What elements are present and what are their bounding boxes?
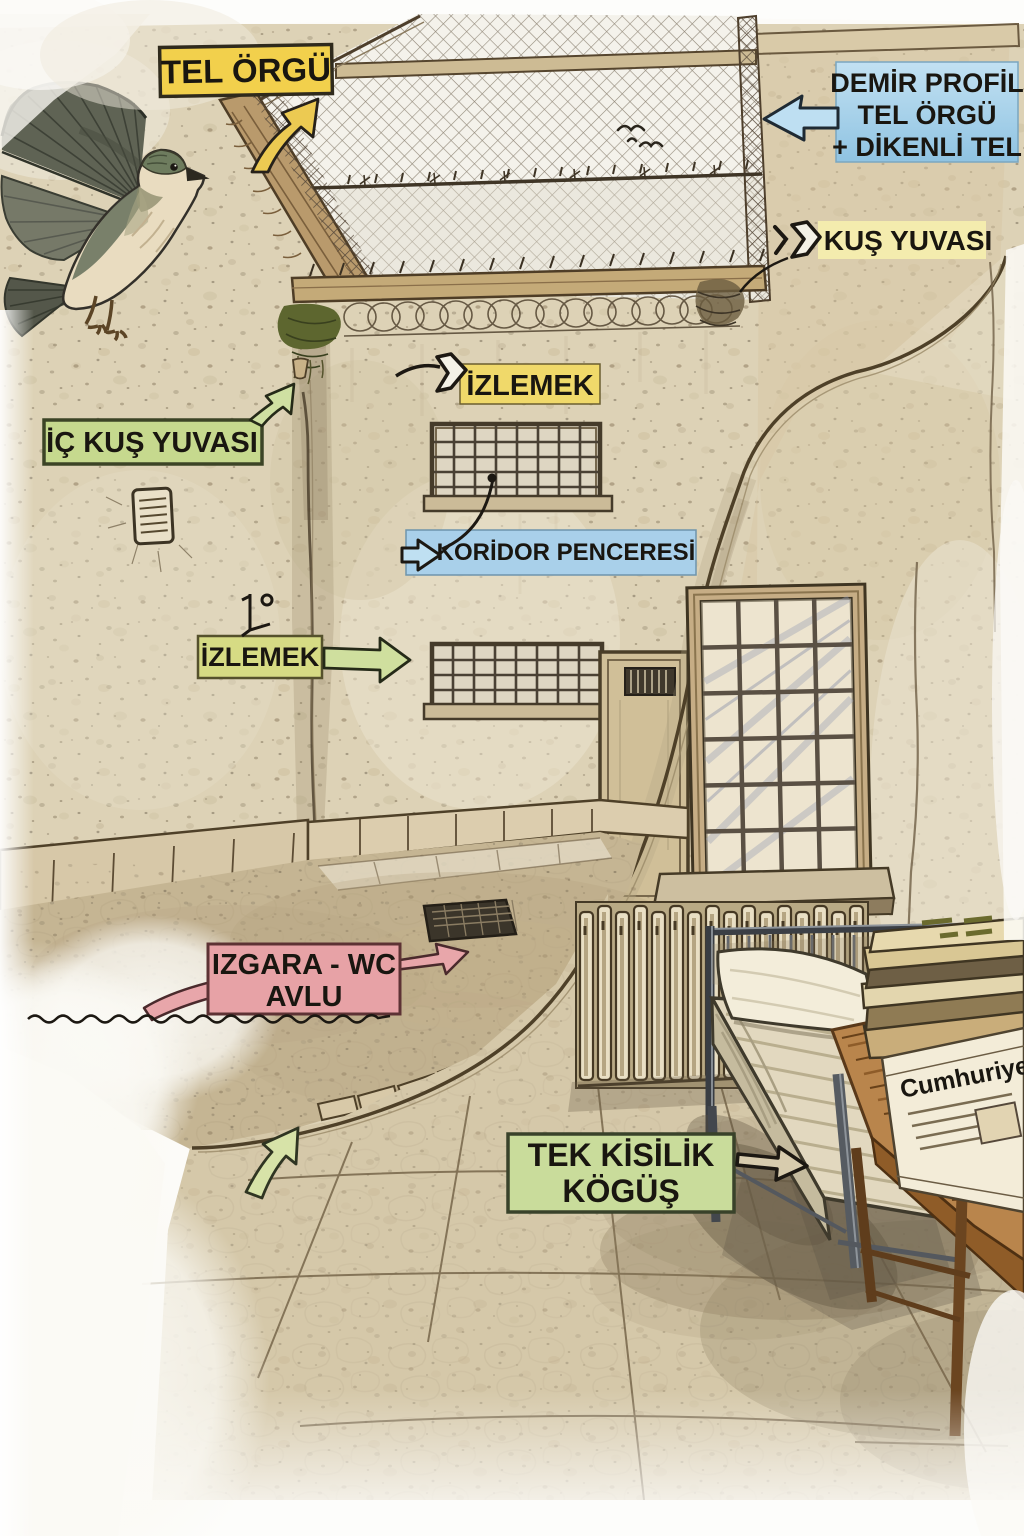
svg-text:KUŞ YUVASI: KUŞ YUVASI: [824, 225, 993, 256]
svg-text:TEL ÖRGÜ: TEL ÖRGÜ: [857, 100, 996, 130]
svg-text:TEL ÖRGÜ: TEL ÖRGÜ: [161, 51, 332, 91]
svg-text:İZLEMEK: İZLEMEK: [466, 370, 593, 402]
svg-text:İÇ KUŞ YUVASI: İÇ KUŞ YUVASI: [46, 427, 258, 459]
svg-text:IZGARA - WC: IZGARA - WC: [212, 949, 396, 981]
svg-text:AVLU: AVLU: [266, 981, 343, 1013]
svg-text:DEMİR PROFİL: DEMİR PROFİL: [830, 68, 1024, 98]
svg-text:KORİDOR PENCERESİ: KORİDOR PENCERESİ: [437, 539, 696, 566]
svg-text:TEK KİSİLİK: TEK KİSİLİK: [528, 1137, 715, 1173]
svg-text:+ DİKENLİ TEL: + DİKENLİ TEL: [832, 132, 1022, 162]
svg-text:KÖGÜŞ: KÖGÜŞ: [562, 1173, 679, 1209]
svg-text:İZLEMEK: İZLEMEK: [201, 642, 320, 672]
